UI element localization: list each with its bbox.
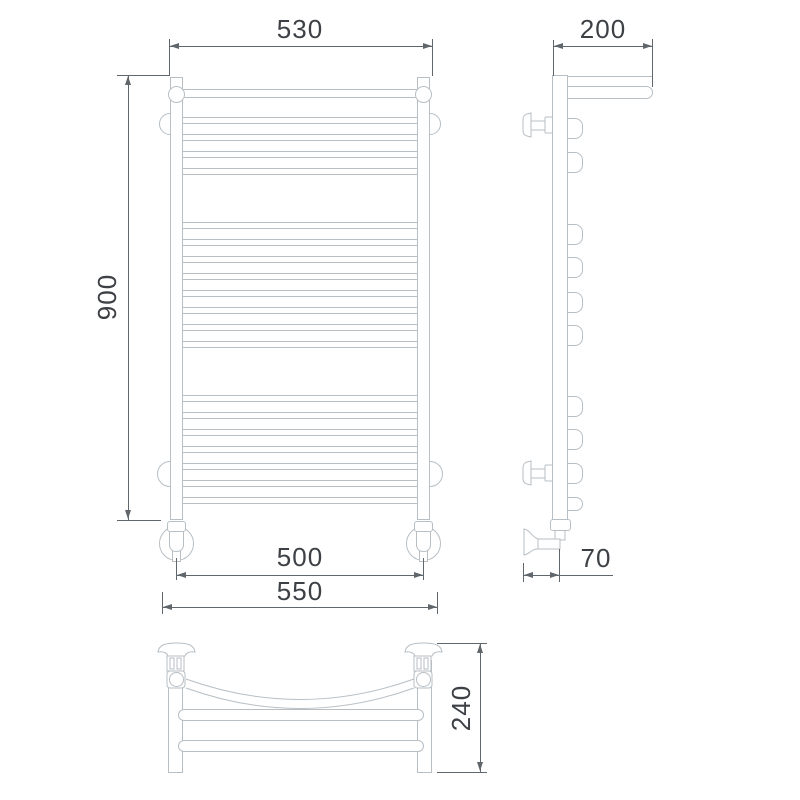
towel-bar [177,168,423,175]
towel-bar [177,463,423,470]
top-view-right-mount [405,643,442,688]
top-view-shelf-bar [178,740,424,752]
top-view-shelf-bar [178,709,424,721]
top-view-curved-bar [186,679,414,709]
towel-bar [177,395,423,402]
front-right-post [417,77,430,520]
dim-line-70 [523,575,613,576]
front-left-top-fitting [168,86,185,103]
dim-ext-550-right [437,592,438,614]
towel-bar [177,117,423,124]
towel-bar [177,429,423,436]
towel-bar [177,412,423,419]
top-view-left-mount [158,643,195,688]
towel-bar [177,341,423,348]
towel-bar [177,134,423,141]
towel-bar [177,497,423,504]
towel-bar [177,307,423,314]
towel-bar [177,222,423,229]
front-right-valve-neck [414,521,433,532]
front-left-valve-neck [167,521,186,532]
dim-label-500: 500 [277,544,323,570]
side-lower-bracket-flange [523,461,553,485]
drawing-canvas: 530 900 500 550 200 70 [0,0,800,800]
dim-line-200 [553,46,653,47]
towel-bar [177,151,423,158]
dim-label-530: 530 [277,16,323,42]
front-right-top-fitting [415,86,432,103]
towel-bar [177,324,423,331]
dim-label-70: 70 [581,545,612,571]
dim-label-240: 240 [448,685,474,731]
dim-ext-530-right [432,39,433,76]
towel-bar [177,290,423,297]
dim-line-240 [480,643,481,773]
front-left-valve-nut [169,531,184,552]
dim-label-900: 900 [94,274,120,320]
towel-bar [177,239,423,246]
towel-bar [177,480,423,487]
towel-bar [177,446,423,453]
dim-label-200: 200 [580,16,626,42]
dim-line-550 [162,607,438,608]
front-left-post [170,77,183,520]
dim-line-900 [128,75,129,520]
dim-ext-500-right [423,558,424,580]
side-post [552,75,568,520]
side-upper-bracket-flange [523,113,553,137]
front-right-valve-nut [416,531,431,552]
side-shelf-bar [567,86,653,99]
towel-bar [177,256,423,263]
front-top-rail [176,89,424,98]
towel-bar [177,273,423,280]
dim-ext-70-pipe [559,549,560,582]
dim-line-530 [169,46,433,47]
dim-label-550: 550 [277,578,323,604]
side-bottom-cap [550,519,571,531]
dim-ext-550-left [162,592,163,614]
dim-tick-900-bottom [117,520,161,521]
